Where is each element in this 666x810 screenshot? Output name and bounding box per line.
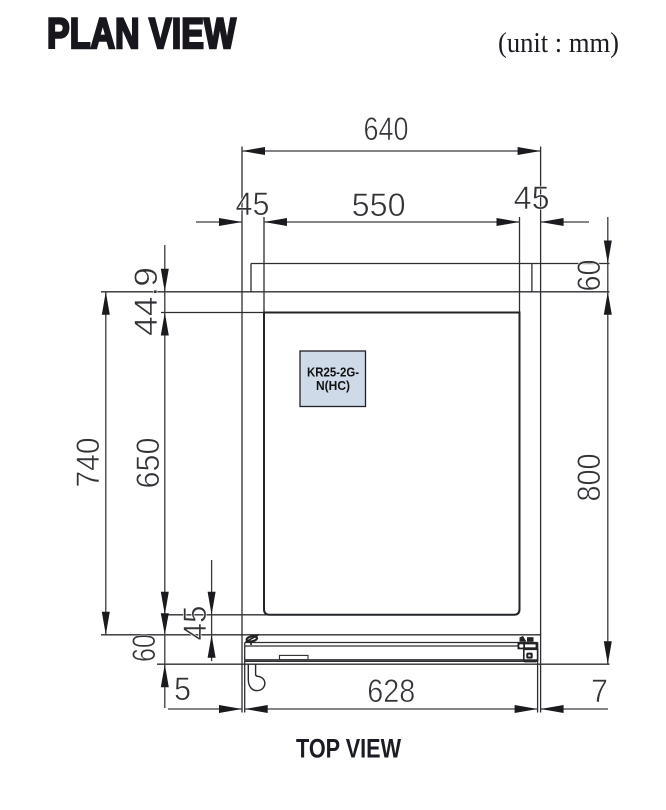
svg-text:7: 7 <box>591 673 608 709</box>
svg-text:5: 5 <box>174 671 191 707</box>
svg-text:60: 60 <box>126 634 162 662</box>
svg-text:N(HC): N(HC) <box>316 379 350 393</box>
svg-text:60: 60 <box>571 260 607 292</box>
svg-text:45: 45 <box>514 180 550 216</box>
svg-text:550: 550 <box>352 187 406 223</box>
svg-text:45: 45 <box>177 606 213 641</box>
svg-text:800: 800 <box>571 454 607 502</box>
svg-text:(unit : mm): (unit : mm) <box>498 27 619 59</box>
svg-text:KR25-2G-: KR25-2G- <box>307 366 359 380</box>
svg-text:628: 628 <box>367 673 415 709</box>
svg-text:640: 640 <box>364 111 409 147</box>
svg-text:650: 650 <box>130 438 166 489</box>
svg-text:740: 740 <box>70 438 106 488</box>
svg-text:TOP VIEW: TOP VIEW <box>296 734 401 764</box>
svg-text:45: 45 <box>236 186 270 222</box>
svg-text:44.9: 44.9 <box>128 267 164 336</box>
svg-text:PLAN VIEW: PLAN VIEW <box>47 10 236 58</box>
